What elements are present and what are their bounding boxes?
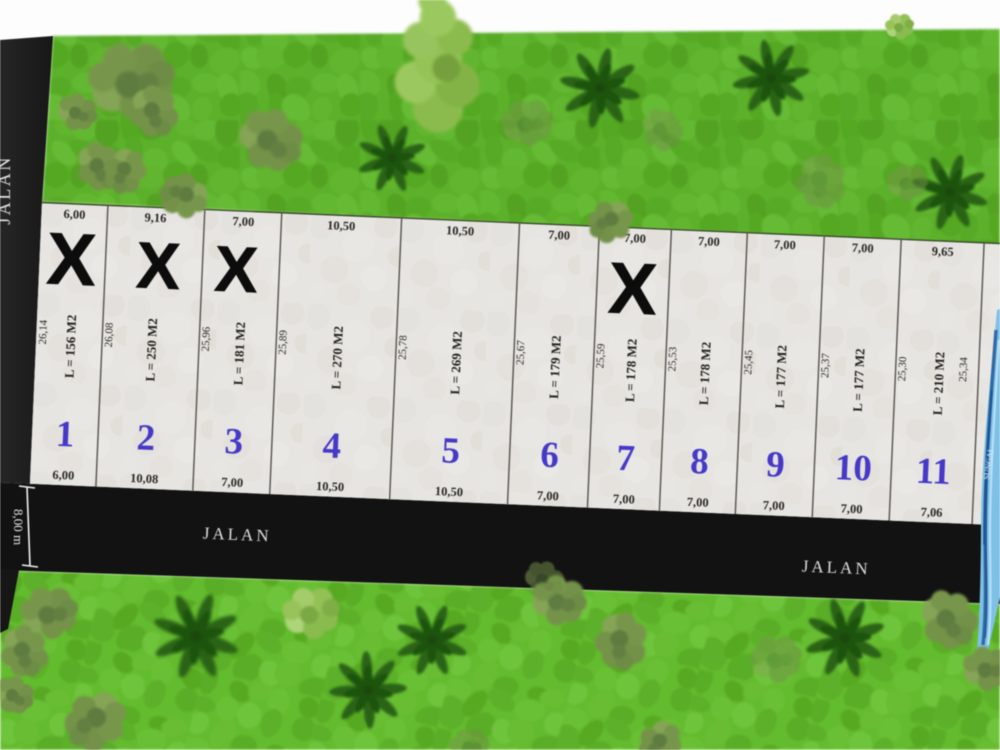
svg-text:26,14: 26,14 (37, 319, 50, 345)
svg-text:1: 1 (55, 414, 75, 456)
svg-text:7,00: 7,00 (221, 475, 243, 490)
svg-text:9,16: 9,16 (144, 210, 166, 225)
svg-text:9: 9 (765, 444, 785, 486)
svg-text:JALAN: JALAN (801, 557, 871, 579)
svg-text:L = 177 M2: L = 177 M2 (850, 348, 868, 412)
svg-text:8,00 m: 8,00 m (11, 509, 26, 545)
svg-text:7,06: 7,06 (920, 505, 942, 520)
svg-text:L = 179 M2: L = 179 M2 (546, 335, 564, 399)
svg-text:7: 7 (615, 438, 635, 480)
svg-text:10,50: 10,50 (316, 479, 345, 494)
svg-text:L = 156 M2: L = 156 M2 (62, 314, 80, 378)
svg-text:X: X (607, 248, 658, 330)
svg-text:7,00: 7,00 (852, 241, 874, 256)
svg-text:L = 178 M2: L = 178 M2 (622, 338, 640, 402)
svg-text:10,50: 10,50 (435, 484, 464, 499)
svg-text:25,37: 25,37 (819, 353, 832, 379)
svg-text:7,00: 7,00 (232, 214, 254, 229)
svg-text:9,65: 9,65 (931, 244, 953, 259)
svg-text:JALAN: JALAN (202, 524, 272, 546)
svg-text:25,59: 25,59 (594, 343, 607, 369)
svg-text:7,00: 7,00 (840, 501, 862, 516)
svg-text:2: 2 (136, 417, 156, 459)
svg-text:7,00: 7,00 (687, 495, 709, 510)
svg-text:4: 4 (322, 425, 342, 467)
svg-text:7,00: 7,00 (537, 488, 559, 503)
svg-text:10,50: 10,50 (446, 223, 475, 238)
svg-text:10,50: 10,50 (327, 218, 356, 233)
svg-text:X: X (135, 228, 181, 303)
svg-text:10: 10 (834, 447, 873, 490)
svg-text:L = 177 M2: L = 177 M2 (772, 345, 790, 409)
svg-text:5: 5 (441, 430, 461, 472)
svg-text:X: X (45, 218, 97, 301)
svg-text:25,30: 25,30 (896, 356, 909, 382)
svg-text:7,00: 7,00 (762, 498, 784, 513)
svg-text:10,08: 10,08 (130, 471, 159, 486)
svg-text:26,08: 26,08 (103, 322, 116, 348)
svg-text:JALAN: JALAN (0, 155, 14, 225)
svg-text:L = 178 M2: L = 178 M2 (696, 342, 714, 406)
svg-text:6,00: 6,00 (52, 468, 74, 483)
svg-text:7,00: 7,00 (698, 234, 720, 249)
svg-text:6: 6 (540, 435, 560, 477)
svg-text:25,89: 25,89 (277, 329, 290, 355)
svg-text:L = 270 M2: L = 270 M2 (328, 326, 346, 390)
svg-text:8: 8 (689, 441, 709, 483)
svg-text:L = 210 M2: L = 210 M2 (930, 352, 948, 416)
svg-text:25,78: 25,78 (397, 334, 410, 360)
svg-text:L = 250 M2: L = 250 M2 (142, 318, 160, 382)
svg-text:L = 269 M2: L = 269 M2 (447, 331, 465, 395)
svg-text:X: X (213, 232, 259, 306)
svg-text:11: 11 (915, 451, 952, 493)
svg-text:25,34: 25,34 (957, 356, 970, 382)
svg-text:3: 3 (224, 421, 244, 463)
svg-text:7,00: 7,00 (774, 237, 796, 252)
svg-text:25,45: 25,45 (742, 349, 755, 375)
svg-text:L = 181 M2: L = 181 M2 (230, 322, 248, 386)
svg-text:25,67: 25,67 (514, 339, 527, 365)
svg-text:7,00: 7,00 (613, 492, 635, 507)
svg-text:25,96: 25,96 (200, 326, 213, 352)
svg-text:7,00: 7,00 (548, 228, 570, 243)
svg-text:25,53: 25,53 (666, 346, 679, 372)
